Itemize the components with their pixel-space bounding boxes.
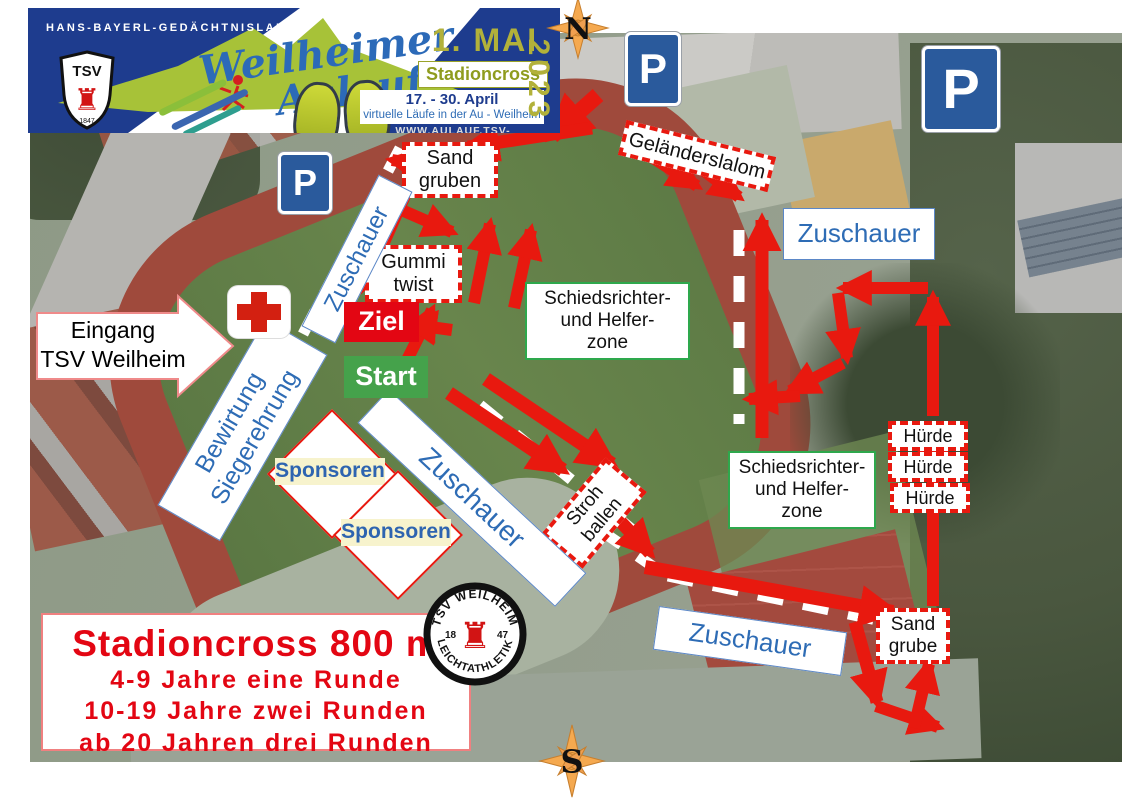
compass-north-letter: N <box>564 12 591 47</box>
label-sponsoren-2: Sponsoren <box>341 519 451 546</box>
parking-sign-north-left: P <box>625 32 681 106</box>
first-aid-cross-horizontal <box>237 304 281 320</box>
svg-text:18: 18 <box>445 630 457 641</box>
label-zuschauer-east: Zuschauer <box>783 208 935 260</box>
label-huerde-2: Hürde <box>888 452 968 482</box>
banner-website: WWW.AULAUF.TSV-WEILHEIM.COM <box>358 125 548 133</box>
entrance-line2: TSV Weilheim <box>40 346 185 372</box>
label-schiedsrichterzone-1: Schiedsrichter- und Helfer- zone <box>525 282 690 360</box>
banner-date-range: 17. - 30. April <box>360 92 544 109</box>
label-huerde-3: Hürde <box>890 483 970 513</box>
svg-text:1847: 1847 <box>79 118 95 125</box>
label-start: Start <box>344 356 428 398</box>
tsv-leichtathletik-badge: TSV WEILHEIM LEICHTATHLETIK 18 47 ♜ <box>423 582 527 686</box>
badge-castle-icon: ♜ <box>459 615 491 656</box>
label-huerde-1: Hürde <box>888 421 968 451</box>
svg-text:47: 47 <box>497 630 509 641</box>
label-sandgrube: Sand grube <box>876 608 950 664</box>
banner-date-sub: virtuelle Läufe in der Au - Weilheim <box>360 109 544 123</box>
compass-south: S <box>538 722 606 800</box>
parking-sign-north-right: P <box>922 46 1000 132</box>
tsv-shield-logo: TSV ♜ 1847 <box>58 50 116 132</box>
course-rule-2: 10-19 Jahre zwei Runden <box>43 696 469 727</box>
parking-sign-west: P <box>278 152 332 214</box>
running-shoe-left <box>290 80 343 133</box>
banner-kicker: HANS-BAYERL-GEDÄCHTNISLAUF <box>46 22 296 34</box>
shield-castle-icon: ♜ <box>74 84 101 117</box>
label-sandgruben: Sand gruben <box>402 142 498 198</box>
course-rule-3: ab 20 Jahren drei Runden <box>43 728 469 759</box>
label-schiedsrichterzone-2: Schiedsrichter- und Helfer- zone <box>728 451 876 529</box>
svg-text:TSV: TSV <box>72 63 101 80</box>
label-sponsoren-1: Sponsoren <box>275 458 385 485</box>
course-info-box: Stadioncross 800 m 4-9 Jahre eine Runde … <box>41 613 471 751</box>
event-banner: HANS-BAYERL-GEDÄCHTNISLAUF TSV ♜ 1847 We… <box>28 8 560 133</box>
stadioncross-course-map-page: { "banner": { "kicker": "HANS-BAYERL-GED… <box>0 0 1122 800</box>
entrance-line1: Eingang <box>71 317 155 343</box>
compass-north: N <box>546 0 610 60</box>
first-aid-icon <box>228 286 290 338</box>
compass-south-letter: S <box>560 743 583 781</box>
course-rule-1: 4-9 Jahre eine Runde <box>43 665 469 696</box>
course-title: Stadioncross 800 m <box>43 623 469 665</box>
banner-virtual-run-box: 17. - 30. April virtuelle Läufe in der A… <box>360 90 544 124</box>
label-ziel: Ziel <box>344 302 419 342</box>
entrance-label: Eingang TSV Weilheim <box>38 316 188 376</box>
